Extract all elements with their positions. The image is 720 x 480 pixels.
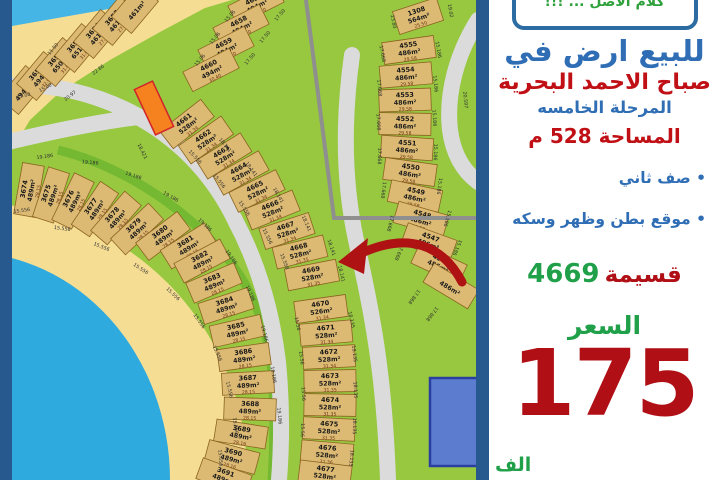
feature-list: صف ثاني موقع بطن وظهر وسكه (489, 169, 720, 228)
plot-4672: 4672528m²31.34 (302, 345, 355, 371)
plot-map: 494m²3657494m²32.923656650m²31.003655651… (12, 0, 476, 480)
svg-text:486m²: 486m² (394, 123, 417, 130)
svg-text:528m²: 528m² (317, 428, 340, 436)
dimension-label: 17.668 (376, 148, 382, 165)
svg-text:3688: 3688 (241, 400, 260, 409)
parcel-label: قسيمة (605, 262, 682, 288)
svg-text:31.34: 31.34 (320, 339, 334, 346)
facility-block (430, 378, 476, 466)
plot-4552: 4552486m²29.58 (379, 113, 431, 137)
price-value: 175 (489, 340, 720, 427)
ad-panel: كلام الاصل ... !!! للبيع ارض في صباح الا… (489, 0, 720, 480)
ad-location: صباح الاحمد البحرية (489, 70, 720, 95)
feature-row-position: صف ثاني (489, 169, 706, 187)
dimension-label: 17.668 (375, 113, 382, 130)
svg-text:3687: 3687 (238, 374, 256, 383)
ad-title: للبيع ارض في (489, 36, 720, 68)
svg-text:489m²: 489m² (237, 382, 260, 390)
plot-4553: 4553486m²29.58 (379, 88, 432, 113)
plot-4674: 4674528m²31.35 (304, 394, 356, 418)
svg-text:29.58: 29.58 (400, 81, 414, 88)
svg-text:4674: 4674 (321, 396, 340, 404)
svg-text:31.34: 31.34 (323, 363, 337, 370)
dimension-label: 18.135 (352, 381, 359, 398)
svg-text:28.15: 28.15 (242, 389, 256, 396)
svg-text:489m²: 489m² (239, 408, 262, 416)
svg-text:29.58: 29.58 (398, 130, 411, 136)
panel-divider-bar (476, 0, 489, 480)
dimension-label: 15.186 (432, 144, 439, 161)
dimension-label: 15.56 (299, 423, 305, 437)
map-canvas: 494m²3657494m²32.923656650m²31.003655651… (12, 0, 476, 480)
svg-text:4672: 4672 (319, 348, 337, 357)
svg-text:29.58: 29.58 (399, 106, 412, 112)
svg-text:4673: 4673 (321, 372, 339, 380)
dimension-label: 15.556 (216, 449, 223, 466)
svg-text:528m²: 528m² (318, 356, 341, 364)
svg-text:31.35: 31.35 (322, 435, 336, 442)
left-frame-bar (0, 0, 12, 480)
plot-4673: 4673528m²31.35 (304, 370, 356, 394)
ad-phase: المرحلة الخامسه (489, 98, 720, 117)
parcel-number: 4669 (527, 259, 599, 289)
svg-text:28.15: 28.15 (243, 415, 256, 421)
dimension-label: 15.186 (431, 109, 438, 126)
plaque-text: كلام الاصل ... !!! (545, 0, 665, 10)
parcel-line: قسيمة 4669 (489, 259, 720, 289)
plot-4675: 4675528m²31.35 (302, 417, 355, 443)
svg-text:486m²: 486m² (394, 99, 417, 107)
feature-location-type: موقع بطن وظهر وسكه (489, 210, 706, 228)
svg-text:31.35: 31.35 (324, 387, 337, 393)
svg-text:4675: 4675 (320, 420, 339, 429)
logo-plaque: كلام الاصل ... !!! (512, 0, 698, 30)
svg-text:4553: 4553 (396, 91, 414, 100)
svg-text:4552: 4552 (396, 115, 414, 123)
svg-text:31.35: 31.35 (323, 411, 336, 417)
dimension-label: 18.135 (351, 418, 357, 435)
dimension-label: 15.56 (300, 387, 307, 401)
price-unit: الف (495, 454, 531, 476)
svg-text:528m²: 528m² (319, 380, 342, 387)
svg-text:528m²: 528m² (319, 404, 342, 411)
ad-plot-area: المساحة 528 م (489, 124, 720, 148)
